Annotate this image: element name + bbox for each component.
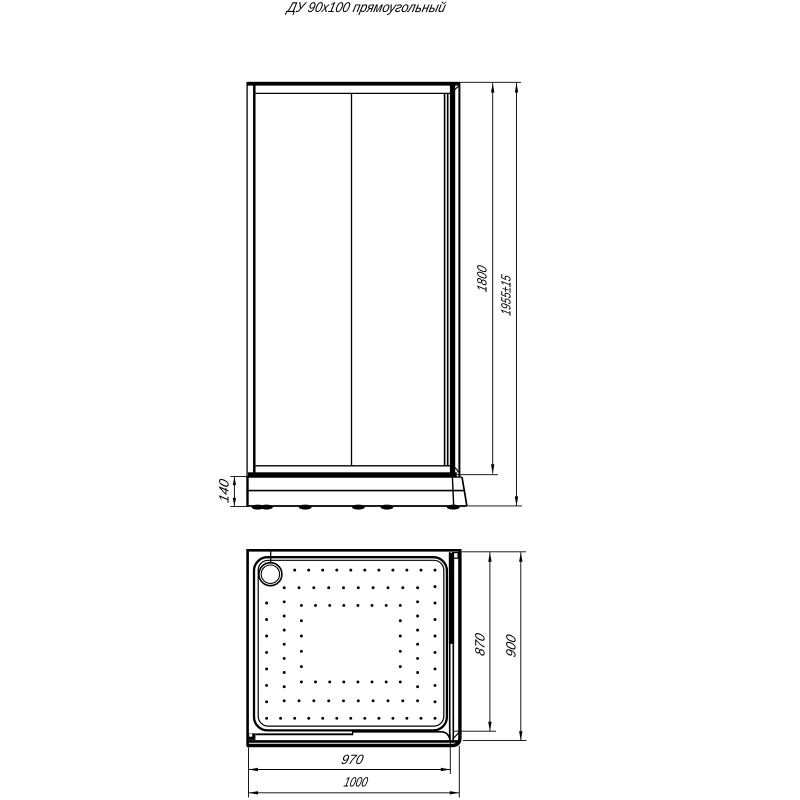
- svg-text:140: 140: [217, 477, 232, 504]
- svg-text:870: 870: [473, 631, 488, 657]
- svg-text:900: 900: [504, 633, 519, 659]
- svg-text:970: 970: [340, 752, 365, 767]
- svg-text:1000: 1000: [342, 774, 369, 789]
- svg-text:1800: 1800: [475, 264, 490, 294]
- svg-text:1955±15: 1955±15: [499, 273, 514, 317]
- svg-text:ДУ 90х100 прямоугольный: ДУ 90х100 прямоугольный: [284, 0, 447, 16]
